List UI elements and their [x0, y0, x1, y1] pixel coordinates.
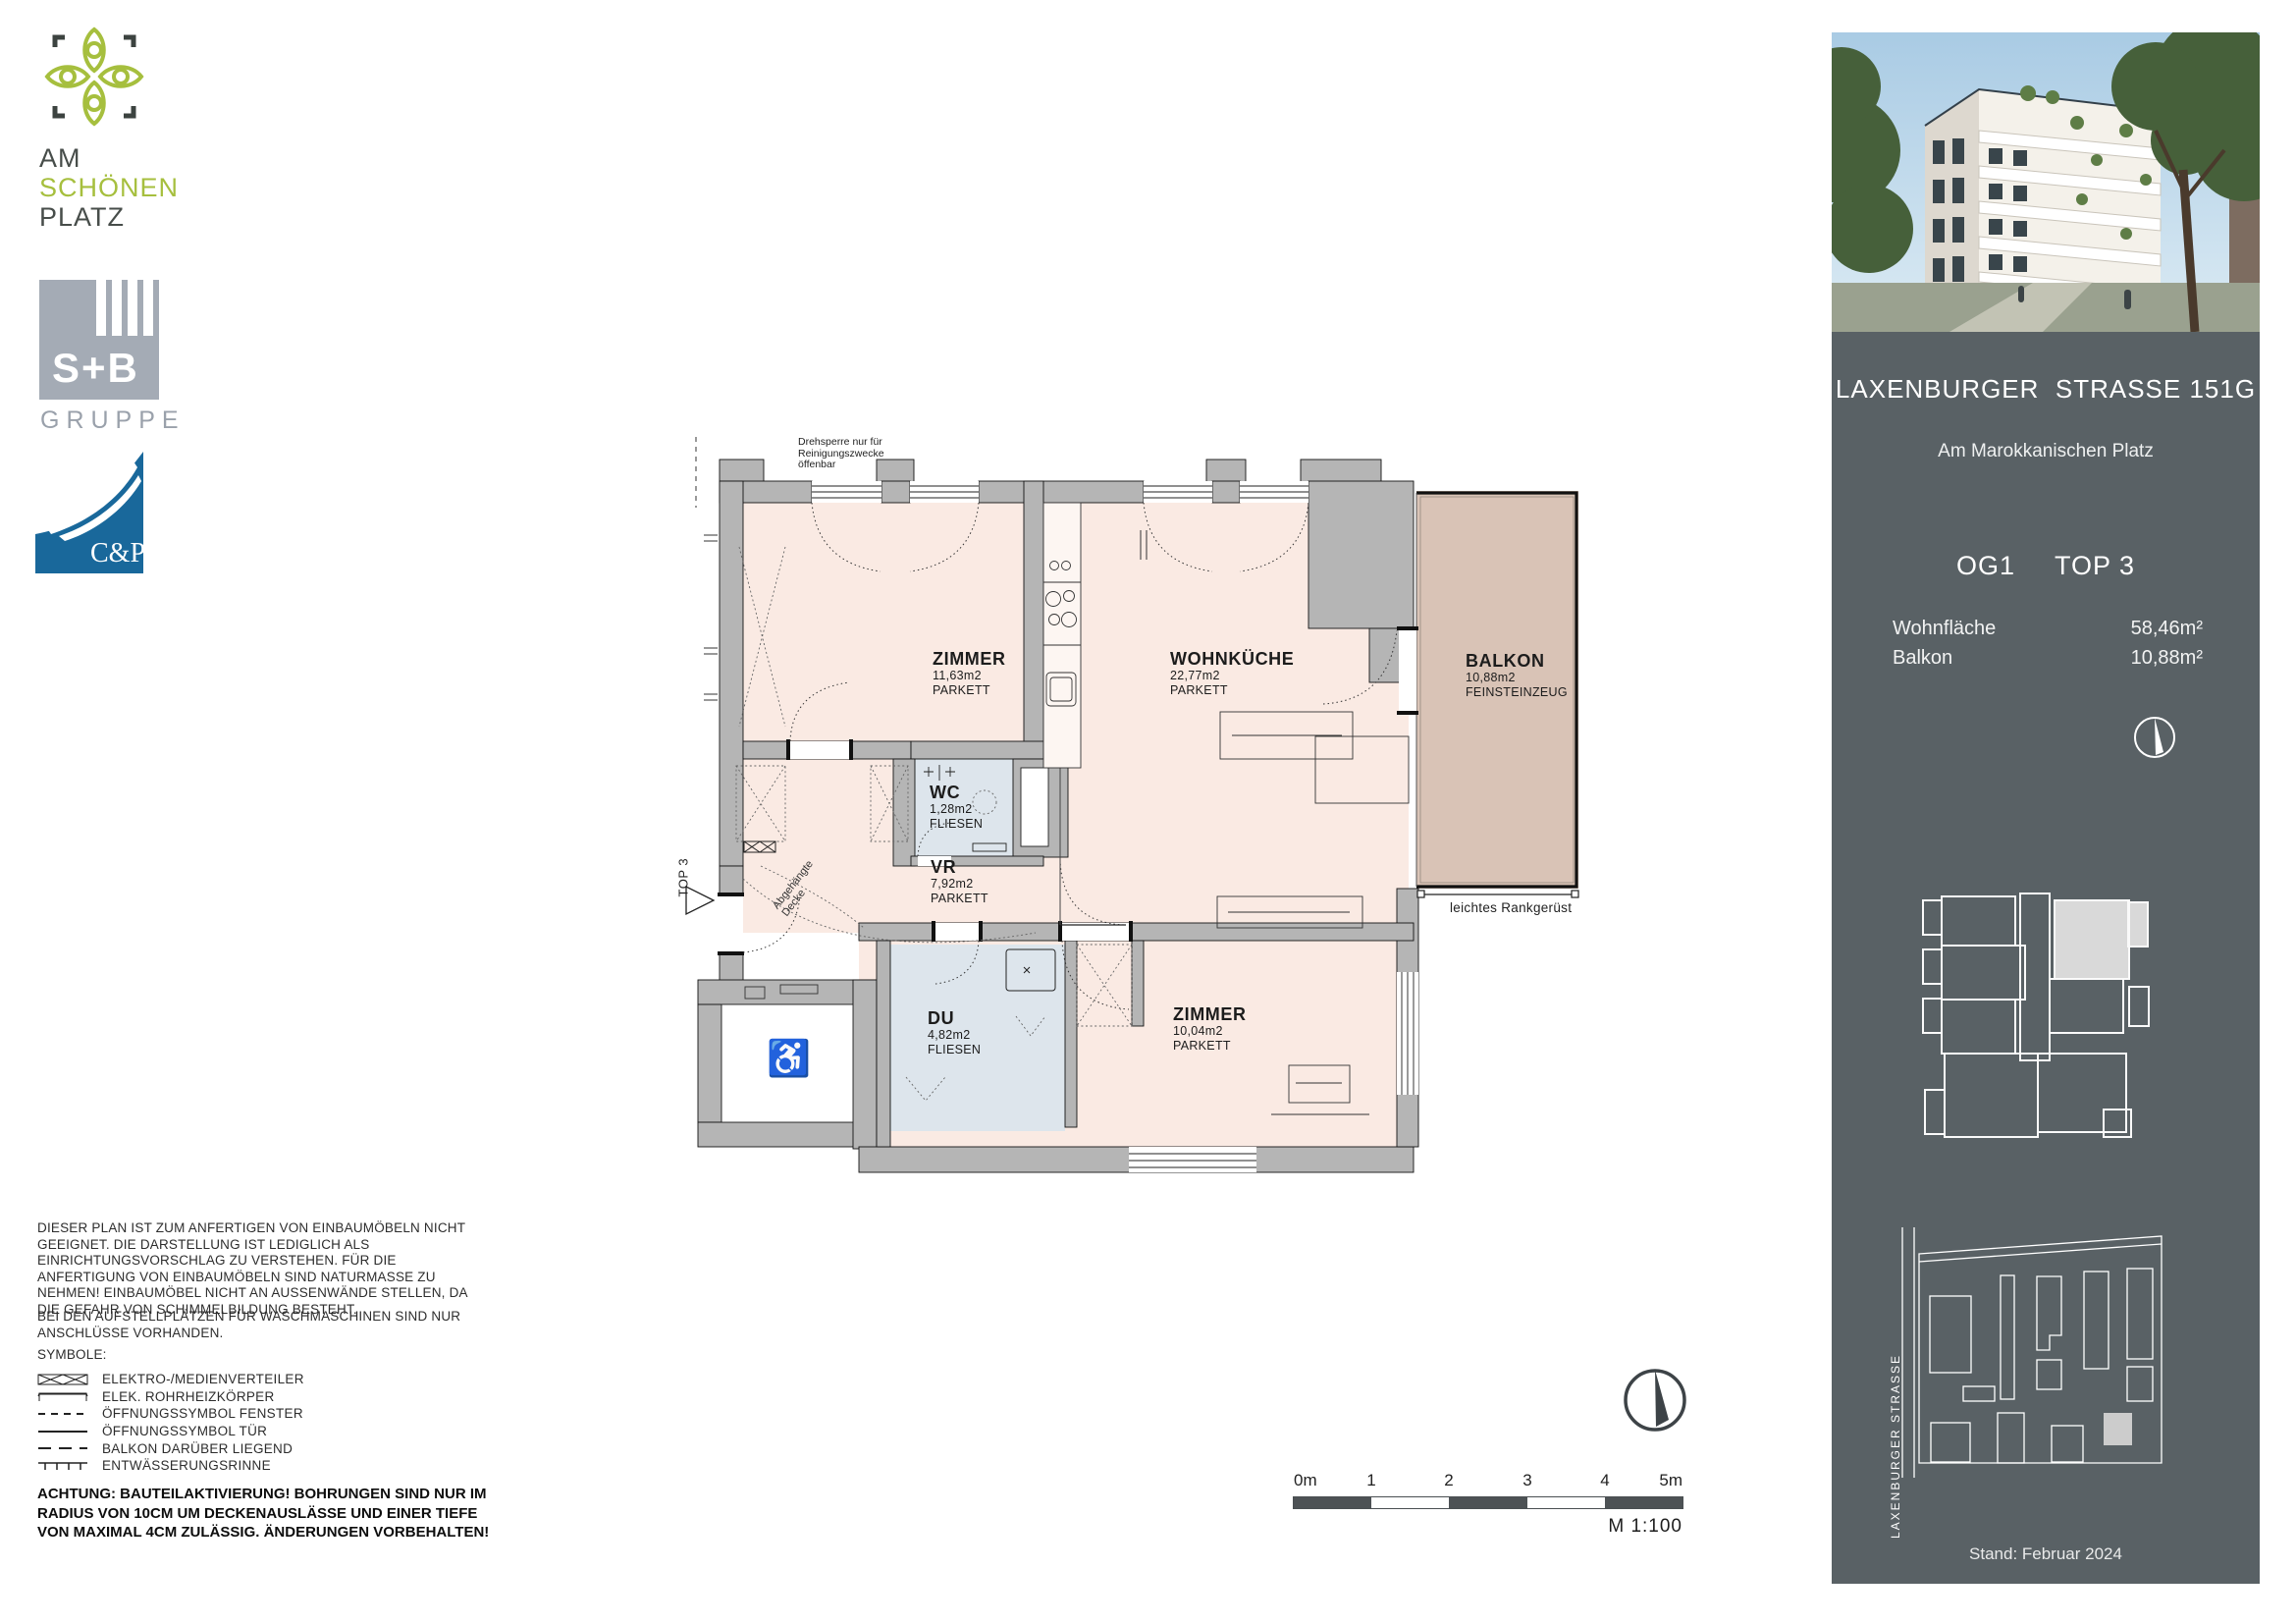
floorplan-sheet: AM SCHÖNEN PLATZ S+B GRUPPE C&P — [0, 0, 2296, 1624]
area-value: 10,88m² — [2131, 643, 2203, 673]
floorplan-drawing: ♿ ZIMMER 11,63m2 PARKETT WOHNKÜCHE 22,77… — [682, 437, 1595, 1183]
legend-label: ELEK. ROHRHEIZKÖRPER — [102, 1389, 275, 1404]
entwaesserungsrinne-icon — [37, 1460, 88, 1472]
legend-item: ELEK. ROHRHEIZKÖRPER — [37, 1388, 304, 1406]
scale-label: M 1:100 — [1608, 1516, 1682, 1538]
legend-label: ÖFFNUNGSSYMBOL FENSTER — [102, 1406, 303, 1421]
sb-logo-bar — [96, 280, 106, 336]
washer-note: BEI DEN AUFSTELLPLÄTZEN FÜR WASCHMASCHIN… — [37, 1309, 491, 1341]
rohrheizkoerper-icon — [37, 1390, 88, 1402]
sidebar-north-arrow-icon — [2132, 715, 2177, 760]
room-floor: FLIESEN — [928, 1043, 981, 1057]
am-schoenen-platz-wordmark: AM SCHÖNEN PLATZ — [39, 143, 179, 232]
building-photo — [1832, 32, 2260, 332]
room-area: 10,88m2 — [1466, 671, 1568, 685]
floorplan-geometry — [682, 437, 1595, 1183]
room-label-wohnkueche: WOHNKÜCHE 22,77m2 PARKETT — [1170, 649, 1294, 697]
scale-bar-segments — [1294, 1497, 1682, 1508]
siteplan-diagram — [1895, 1222, 2174, 1488]
room-name: WOHNKÜCHE — [1170, 649, 1294, 669]
room-area: 22,77m2 — [1170, 669, 1294, 683]
room-name: ZIMMER — [933, 649, 1006, 669]
room-floor: PARKETT — [931, 892, 988, 906]
scale-bar: 0m 1 2 3 4 5m M 1:100 — [1294, 1471, 1682, 1540]
project-address: LAXENBURGER STRASSE 151G — [1832, 374, 2260, 405]
room-label-zimmer1: ZIMMER 11,63m2 PARKETT — [933, 649, 1006, 697]
sb-logo-bar — [143, 280, 153, 336]
room-name: DU — [928, 1008, 981, 1028]
plan-date: Stand: Februar 2024 — [1832, 1544, 2260, 1564]
sb-logo-bar — [112, 280, 122, 336]
area-row: Wohnfläche 58,46m² — [1893, 614, 2203, 643]
unit-number: TOP 3 — [2055, 551, 2135, 581]
oeffnung-fenster-icon — [37, 1408, 88, 1420]
room-area: 4,82m2 — [928, 1028, 981, 1043]
scale-tick: 0m — [1294, 1471, 1317, 1490]
info-sidebar: LAXENBURGER STRASSE 151G Am Marokkanisch… — [1832, 32, 2260, 1584]
room-floor: FEINSTEINZEUG — [1466, 685, 1568, 700]
area-table: Wohnfläche 58,46m² Balkon 10,88m² — [1893, 614, 2203, 673]
room-floor: PARKETT — [1170, 683, 1294, 698]
room-name: ZIMMER — [1173, 1004, 1247, 1024]
room-area: 10,04m2 — [1173, 1024, 1247, 1039]
unit-floor: OG1 — [1956, 551, 2015, 581]
scale-tick: 5m — [1659, 1471, 1682, 1490]
brand-line-3: PLATZ — [39, 202, 179, 232]
sb-logo-bar — [128, 280, 137, 336]
rankgeruest-note: leichtes Rankgerüst — [1450, 900, 1572, 915]
project-subtitle: Am Marokkanischen Platz — [1832, 441, 2260, 462]
room-name: WC — [930, 783, 983, 802]
sb-gruppe-logo: S+B — [39, 280, 159, 400]
unit-line: OG1 TOP 3 — [1832, 551, 2260, 581]
oeffnung-tuer-icon — [37, 1426, 88, 1437]
legend-item: BALKON DARÜBER LIEGEND — [37, 1439, 304, 1457]
area-label: Wohnfläche — [1893, 614, 1996, 643]
room-area: 11,63m2 — [933, 669, 1006, 683]
room-label-vr: VR 7,92m2 PARKETT — [931, 857, 988, 905]
scale-tick: 2 — [1444, 1471, 1453, 1490]
scale-tick: 4 — [1600, 1471, 1609, 1490]
top3-marker-label: TOP 3 — [676, 852, 691, 897]
room-label-zimmer2: ZIMMER 10,04m2 PARKETT — [1173, 1004, 1247, 1053]
brand-line-1: AM — [39, 143, 179, 173]
brand-line-2: SCHÖNEN — [39, 173, 179, 202]
area-label: Balkon — [1893, 643, 1952, 673]
room-label-wc: WC 1,28m2 FLIESEN — [930, 783, 983, 831]
legend-item: ENTWÄSSERUNGSRINNE — [37, 1457, 304, 1475]
drehsperre-note: Drehsperre nur für Reinigungszwecke öffe… — [798, 437, 884, 471]
cp-logo-letters: C&P — [90, 538, 145, 568]
room-floor: PARKETT — [933, 683, 1006, 698]
room-area: 7,92m2 — [931, 877, 988, 892]
legend-item: ÖFFNUNGSSYMBOL TÜR — [37, 1423, 304, 1440]
area-value: 58,46m² — [2131, 614, 2203, 643]
sb-logo-letters: S+B — [52, 345, 139, 392]
scale-tick: 1 — [1366, 1471, 1375, 1490]
cp-logo-icon: C&P — [27, 448, 165, 577]
siteplan-street-label: LAXENBURGER STRASSE — [1889, 1295, 1902, 1539]
room-name: VR — [931, 857, 988, 877]
am-schoenen-platz-ornament-icon — [39, 22, 149, 135]
area-row: Balkon 10,88m² — [1893, 643, 2203, 673]
scale-tick: 3 — [1522, 1471, 1531, 1490]
keyplan-diagram — [1920, 889, 2150, 1146]
legend-item: ELEKTRO-/MEDIENVERTEILER — [37, 1371, 304, 1388]
legend-item: ÖFFNUNGSSYMBOL FENSTER — [37, 1405, 304, 1423]
wheelchair-icon: ♿ — [767, 1038, 811, 1079]
room-name: BALKON — [1466, 651, 1568, 671]
room-area: 1,28m2 — [930, 802, 983, 817]
legend-label: ENTWÄSSERUNGSRINNE — [102, 1458, 271, 1473]
room-label-du: DU 4,82m2 FLIESEN — [928, 1008, 981, 1056]
room-label-balkon: BALKON 10,88m2 FEINSTEINZEUG — [1466, 651, 1568, 699]
balkon-darueber-icon — [37, 1442, 88, 1454]
legend-label: BALKON DARÜBER LIEGEND — [102, 1441, 293, 1456]
north-arrow-icon — [1620, 1365, 1690, 1435]
symbols-title: SYMBOLE: — [37, 1347, 481, 1364]
symbol-legend: ELEKTRO-/MEDIENVERTEILER ELEK. ROHRHEIZK… — [37, 1371, 304, 1475]
legend-label: ELEKTRO-/MEDIENVERTEILER — [102, 1372, 304, 1386]
elektro-medienverteiler-icon — [37, 1374, 88, 1385]
legend-label: ÖFFNUNGSSYMBOL TÜR — [102, 1424, 267, 1438]
plan-disclaimer: DIESER PLAN IST ZUM ANFERTIGEN VON EINBA… — [37, 1220, 481, 1319]
room-floor: FLIESEN — [930, 817, 983, 832]
room-floor: PARKETT — [1173, 1039, 1247, 1054]
achtung-note: ACHTUNG: BAUTEILAKTIVIERUNG! BOHRUNGEN S… — [37, 1485, 507, 1543]
sb-gruppe-label: GRUPPE — [40, 406, 186, 435]
